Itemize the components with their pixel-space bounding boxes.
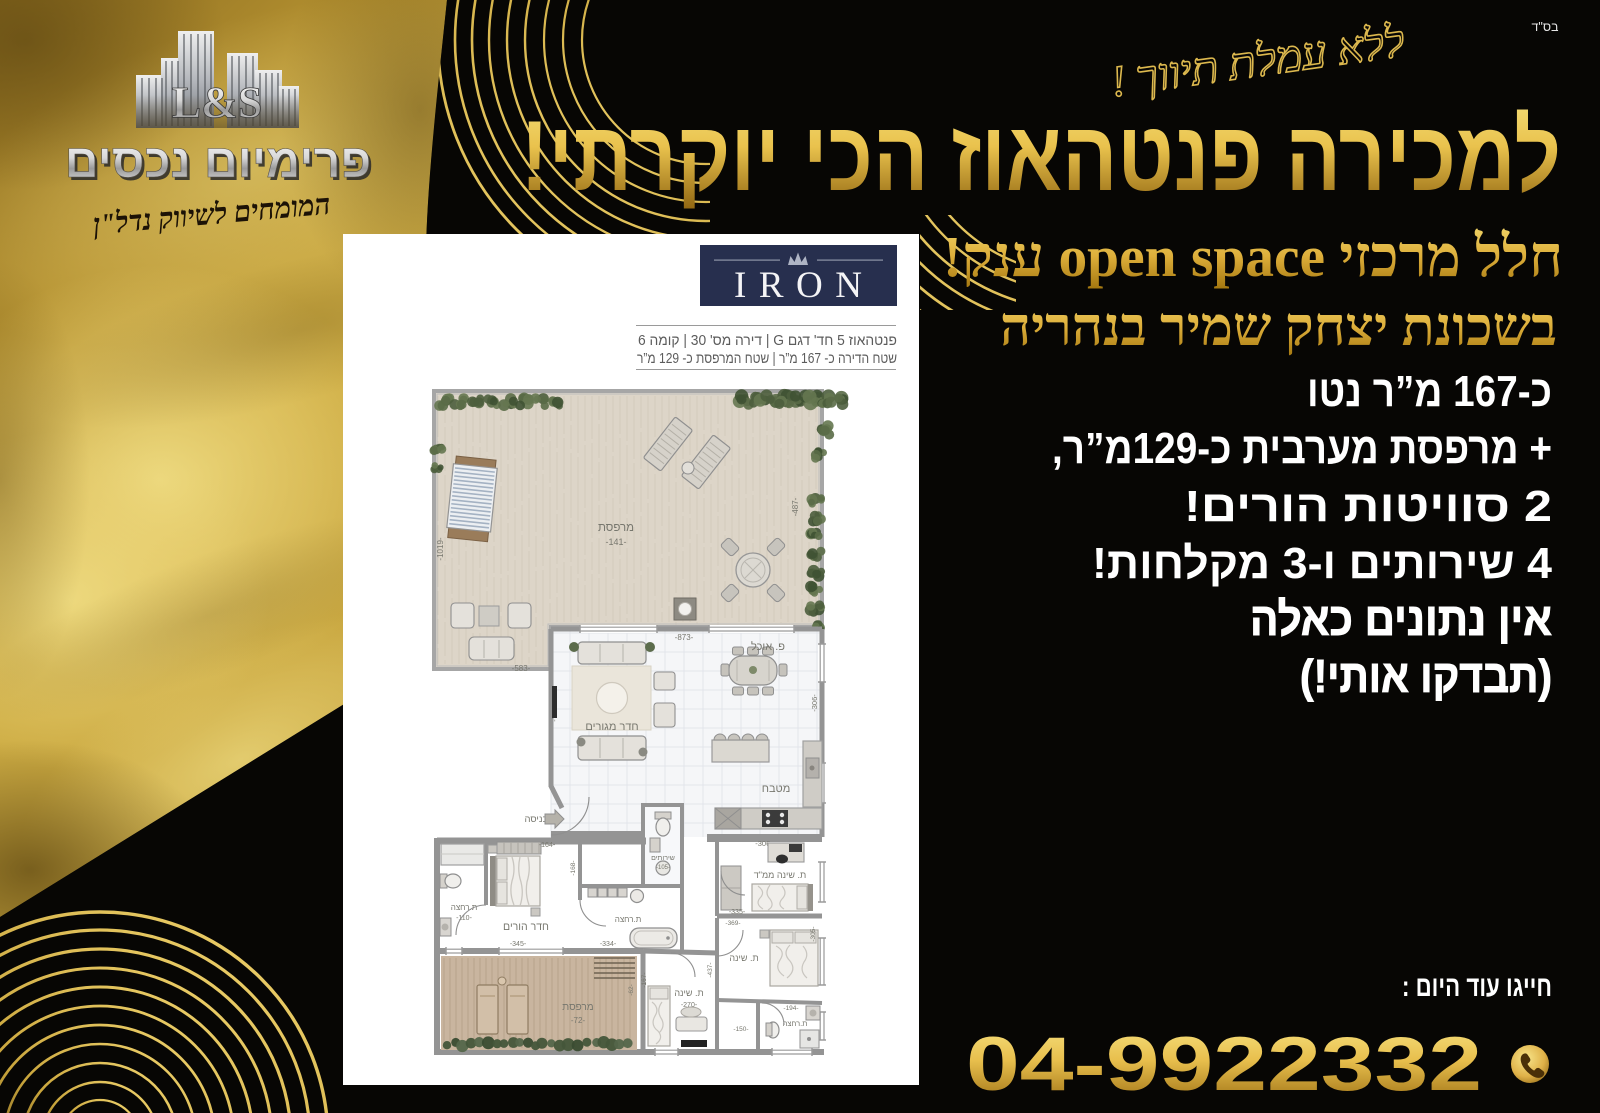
svg-text:חדר הורים: חדר הורים (503, 921, 549, 933)
svg-text:L&S: L&S (172, 78, 262, 127)
svg-text:-141-: -141- (605, 537, 626, 547)
svg-text:-305-: -305- (810, 926, 817, 941)
svg-text:חדר מגורים: חדר מגורים (585, 721, 638, 733)
svg-text:למכירה פנטהאוז הכי יוקרתי!: למכירה פנטהאוז הכי יוקרתי! (521, 100, 1561, 211)
svg-text:(תבדקו אותי!): (תבדקו אותי!) (1300, 650, 1552, 702)
svg-text:ת. שינה: ת. שינה (729, 953, 758, 963)
svg-text:שירותים: שירותים (651, 855, 675, 862)
svg-text:-150-: -150- (733, 1026, 748, 1033)
svg-text:-194-: -194- (783, 1005, 798, 1012)
svg-text:-72-: -72- (571, 1016, 586, 1025)
svg-text:כ-167 מ”ר נטו: כ-167 מ”ר נטו (1307, 367, 1552, 416)
svg-text:חייגו עוד היום :: חייגו עוד היום : (1402, 971, 1552, 1003)
svg-text:-168-: -168- (570, 860, 577, 875)
svg-text:-164-: -164- (539, 842, 556, 849)
svg-text:-437-: -437- (707, 962, 714, 977)
svg-text:-345-: -345- (510, 941, 527, 948)
svg-text:-62-: -62- (628, 984, 635, 996)
svg-text:-167-: -167- (641, 972, 648, 987)
svg-text:-110-: -110- (456, 915, 473, 922)
svg-text:-306-: -306- (810, 694, 819, 712)
svg-text:-583-: -583- (512, 664, 531, 673)
svg-text:-105-: -105- (656, 865, 670, 871)
svg-text:-334-: -334- (600, 941, 617, 948)
svg-text:בשכונת יצחק שמיר בנהריה: בשכונת יצחק שמיר בנהריה (1000, 297, 1557, 357)
svg-text:-487-: -487- (791, 497, 800, 516)
svg-text:כניסה: כניסה (524, 814, 547, 825)
svg-text:-270-: -270- (681, 1002, 698, 1009)
svg-text:ת.רחצה: ת.רחצה (783, 1019, 808, 1028)
svg-text:+ מרפסת מערבית כ-129מ”ר,: + מרפסת מערבית כ-129מ”ר, (1052, 424, 1552, 473)
svg-text:פרימיום נכסים: פרימיום נכסים (65, 134, 372, 187)
svg-text:אין נתונים כאלה: אין נתונים כאלה (1250, 593, 1552, 645)
svg-text:-1019-: -1019- (436, 537, 445, 560)
svg-text:-369-: -369- (725, 920, 740, 927)
svg-text:מטבח: מטבח (762, 783, 791, 795)
svg-text:שטח הדירה כ- 167 מ”ר | שטח המר: שטח הדירה כ- 167 מ”ר | שטח המרפסת כ- 129… (637, 351, 897, 367)
svg-text:4 שירותים ו-3 מקלחות!: 4 שירותים ו-3 מקלחות! (1092, 539, 1553, 588)
svg-text:-335-: -335- (729, 909, 746, 916)
svg-text:פנטהאוז 5 חד' דגם G | דירה מס': פנטהאוז 5 חד' דגם G | דירה מס' 30 | קומה… (638, 333, 897, 349)
svg-text:מרפסת: מרפסת (598, 522, 634, 534)
svg-text:2 סוויטות הורים!: 2 סוויטות הורים! (1184, 482, 1552, 531)
svg-text:חלל מרכזי open space ענק!: חלל מרכזי open space ענק! (943, 224, 1563, 289)
svg-text:04-9922332: 04-9922332 (966, 1022, 1482, 1107)
svg-text:ת.רחצה: ת.רחצה (615, 915, 641, 924)
svg-text:בס"ד: בס"ד (1531, 20, 1559, 34)
svg-text:ת. שינה ממ"ד: ת. שינה ממ"ד (754, 870, 806, 880)
svg-text:מרפסת: מרפסת (562, 1002, 594, 1013)
svg-text:פ. אוכל: פ. אוכל (751, 640, 785, 653)
svg-text:ת. שינה: ת. שינה (674, 988, 703, 998)
svg-text:-873-: -873- (675, 633, 694, 642)
